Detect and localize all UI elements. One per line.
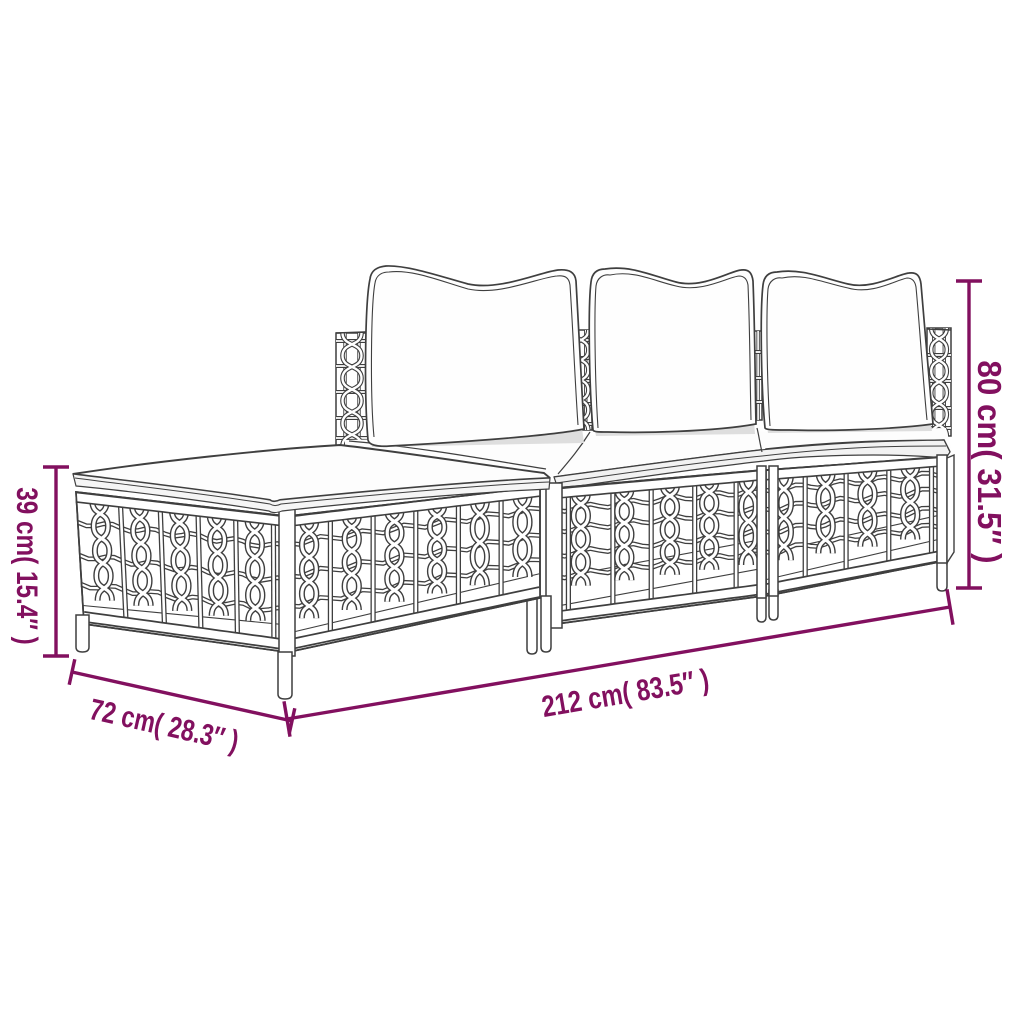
svg-text:80 cm( 31.5″ ): 80 cm( 31.5″ ) <box>971 360 1008 563</box>
svg-text:39 cm( 15.4″ ): 39 cm( 15.4″ ) <box>10 487 44 644</box>
